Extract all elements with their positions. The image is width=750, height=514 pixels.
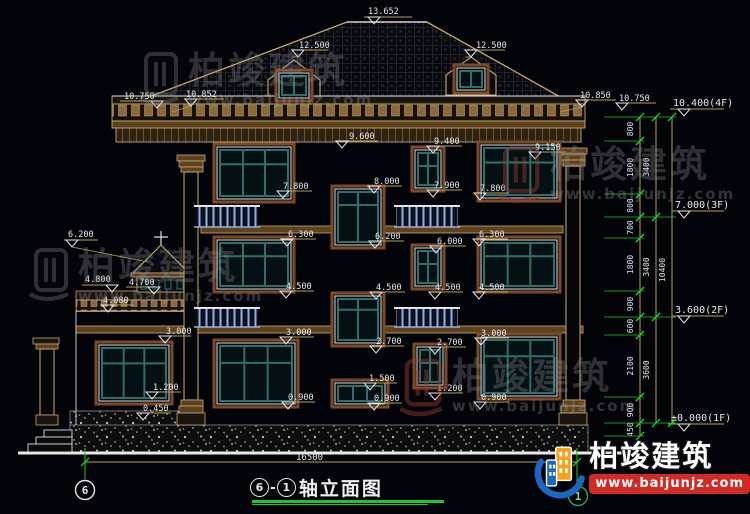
step <box>28 444 72 452</box>
elevation-marker-triangle <box>678 109 690 116</box>
title-underline <box>252 500 444 503</box>
elevation-marker-triangle <box>616 103 628 110</box>
elevation-marker-label: 3.600(2F) <box>675 305 729 316</box>
elevation-marker-triangle <box>66 240 78 247</box>
dimension-value: 3400 <box>642 257 651 276</box>
title-text: 轴立面图 <box>299 474 383 501</box>
svg-text:6: 6 <box>82 484 89 497</box>
window-frame <box>220 150 288 196</box>
porch-canopy <box>33 338 59 344</box>
elevation-marker-label: 4.800 <box>85 275 111 285</box>
title-underline-2 <box>252 504 428 505</box>
window-frame <box>484 243 554 286</box>
elevation-marker-triangle <box>474 402 486 409</box>
dimension-value: 900 <box>626 297 635 312</box>
pilaster-right <box>559 148 587 425</box>
brand-name: 柏竣建筑 <box>589 441 750 473</box>
porch <box>28 338 72 452</box>
dimension-value: 600 <box>626 319 635 334</box>
dimension-value: 700 <box>626 220 635 235</box>
dimension-value: 900 <box>626 403 635 418</box>
title-axis-end: 1 <box>277 478 296 497</box>
dimension-value: 3600 <box>642 360 651 379</box>
elevation-marker-triangle <box>678 316 690 323</box>
floor-band-2f <box>76 326 583 333</box>
cad-elevation-drawing: 16500 6 1 13.65212.50012.50010.75010.852… <box>0 0 750 514</box>
dimension-value: 450 <box>626 422 635 437</box>
dimension-value: 1800 <box>626 158 635 177</box>
dimension-value: 800 <box>626 198 635 213</box>
elevation-marker-triangle <box>678 424 690 431</box>
main-plinth <box>70 425 588 452</box>
axis-bubble-left: 6 <box>76 481 95 500</box>
dimension-value: 1800 <box>626 255 635 274</box>
balcony-railing <box>396 207 458 227</box>
brand-logo-icon <box>528 441 585 505</box>
elevation-marker-label: 6.200 <box>68 230 94 240</box>
drawing-layer: 16500 6 1 13.65212.50012.50010.75010.852… <box>0 0 750 514</box>
title-separator: - <box>270 480 276 496</box>
step <box>36 437 72 444</box>
brand-url-banner: www.baijunjz.com <box>589 474 750 494</box>
porch-column <box>40 349 54 415</box>
elevation-marker-triangle <box>678 211 690 218</box>
window-frame <box>220 243 288 286</box>
turret-roof <box>133 245 189 273</box>
elevation-marker-triangle <box>429 292 441 299</box>
balcony-railing <box>396 309 458 327</box>
window-frame <box>220 346 292 401</box>
elevation-marker-label: 10.400(4F) <box>673 98 733 109</box>
dimension-value: 10400 <box>658 258 667 282</box>
brand-logo-block: 柏竣建筑 www.baijunjz.com <box>528 441 750 505</box>
dimension-value: 3400 <box>642 157 651 176</box>
drawing-title: 6 - 1 轴立面图 <box>250 474 383 501</box>
step <box>44 430 72 437</box>
title-axis-start: 6 <box>250 478 269 497</box>
elevation-marker-leader <box>72 247 148 262</box>
window-frame <box>484 340 554 393</box>
elevation-marker-label: 13.652 <box>368 7 399 17</box>
balcony-railing <box>196 207 258 227</box>
elevation-marker-triangle <box>429 393 441 400</box>
balcony-railing <box>196 309 258 327</box>
dimension-value: 800 <box>626 122 635 137</box>
elevation-marker-label: ±0.000(1F) <box>671 413 731 424</box>
total-width-dimension: 16500 <box>296 453 323 463</box>
dimension-value: 2100 <box>626 356 635 375</box>
elevation-marker-label: 7.000(3F) <box>675 200 729 211</box>
